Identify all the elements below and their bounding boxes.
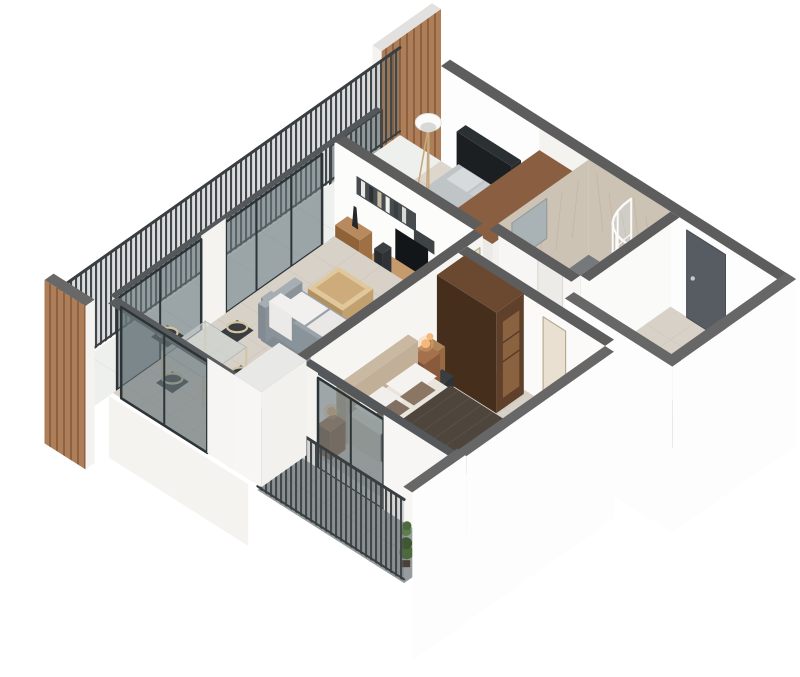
- floor-plan-svg: [0, 0, 800, 677]
- west-wood-panel: [45, 274, 95, 470]
- floor-plan-render: [0, 0, 800, 677]
- south-balcony-se-wall: [403, 449, 466, 661]
